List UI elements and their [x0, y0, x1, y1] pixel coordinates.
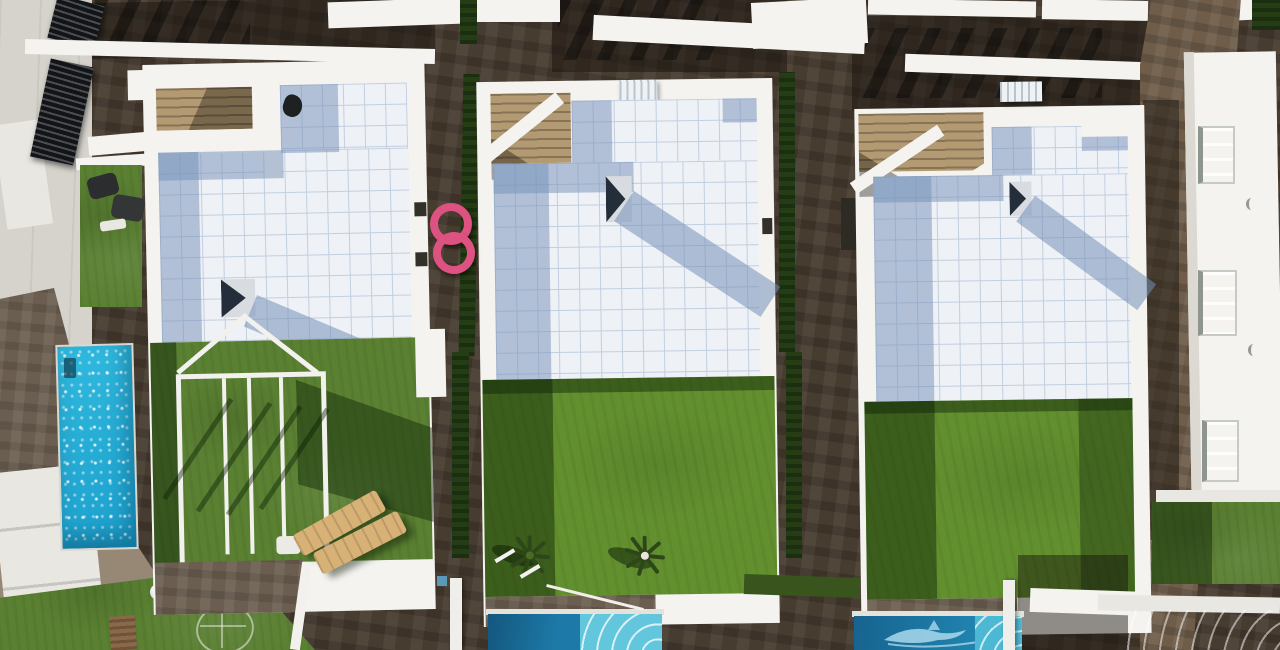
side-protrusion — [415, 329, 446, 398]
hedge-strip — [460, 0, 477, 44]
neighbour-roof-slab — [1042, 0, 1148, 21]
hedge-strip — [452, 352, 469, 558]
pool-middle-deep — [488, 614, 580, 650]
side-door — [762, 218, 772, 234]
blue-utility-box — [437, 576, 447, 586]
parapet-shadow — [722, 98, 756, 122]
parapet-shadow — [873, 175, 1003, 203]
doormat — [109, 615, 137, 650]
hedge-strip — [779, 72, 795, 352]
parapet-shadow — [1082, 136, 1128, 151]
villa-left-corner-jut — [127, 70, 150, 100]
rotary-dryer-arm — [200, 625, 246, 627]
side-door — [415, 252, 427, 266]
neighbour-roof-slab — [328, 0, 463, 28]
side-door — [414, 202, 426, 216]
hedge-strip — [786, 352, 802, 558]
palm-plant — [623, 533, 668, 578]
villa-left — [127, 52, 454, 618]
wall-fixture — [1248, 344, 1259, 356]
recessed-window — [1202, 420, 1239, 482]
parapet-shadow — [572, 100, 613, 163]
white-post — [1003, 580, 1015, 650]
villa-left-terrace-paving — [155, 560, 304, 615]
recessed-window — [1198, 126, 1235, 184]
pool-middle-roman-steps — [580, 614, 662, 650]
neighbour-roof-slab — [868, 0, 1036, 17]
white-post — [450, 578, 462, 650]
parapet-shadow — [992, 127, 1033, 176]
parapet-shadow — [493, 163, 551, 380]
parapet-shadow — [158, 150, 284, 181]
neighbour-roof-slab — [468, 0, 560, 22]
lawn-strip-bottom — [744, 574, 861, 598]
recessed-window — [1198, 270, 1237, 336]
pool-corner — [1120, 610, 1280, 650]
ac-unit — [1000, 81, 1042, 102]
villa-middle — [472, 68, 785, 632]
wall-fixture — [1246, 198, 1257, 210]
lawn-curb-right — [1156, 490, 1280, 502]
hedge-strip — [1252, 0, 1280, 30]
aerial-scene — [0, 0, 1280, 650]
pool-ladder — [64, 358, 76, 378]
lawn-shadow-left — [864, 401, 937, 600]
neighbour-roof-slab — [751, 0, 868, 49]
lawn-right-shadow — [1152, 502, 1212, 584]
parapet-corner — [1081, 118, 1127, 137]
parapet-shadow — [873, 176, 934, 402]
